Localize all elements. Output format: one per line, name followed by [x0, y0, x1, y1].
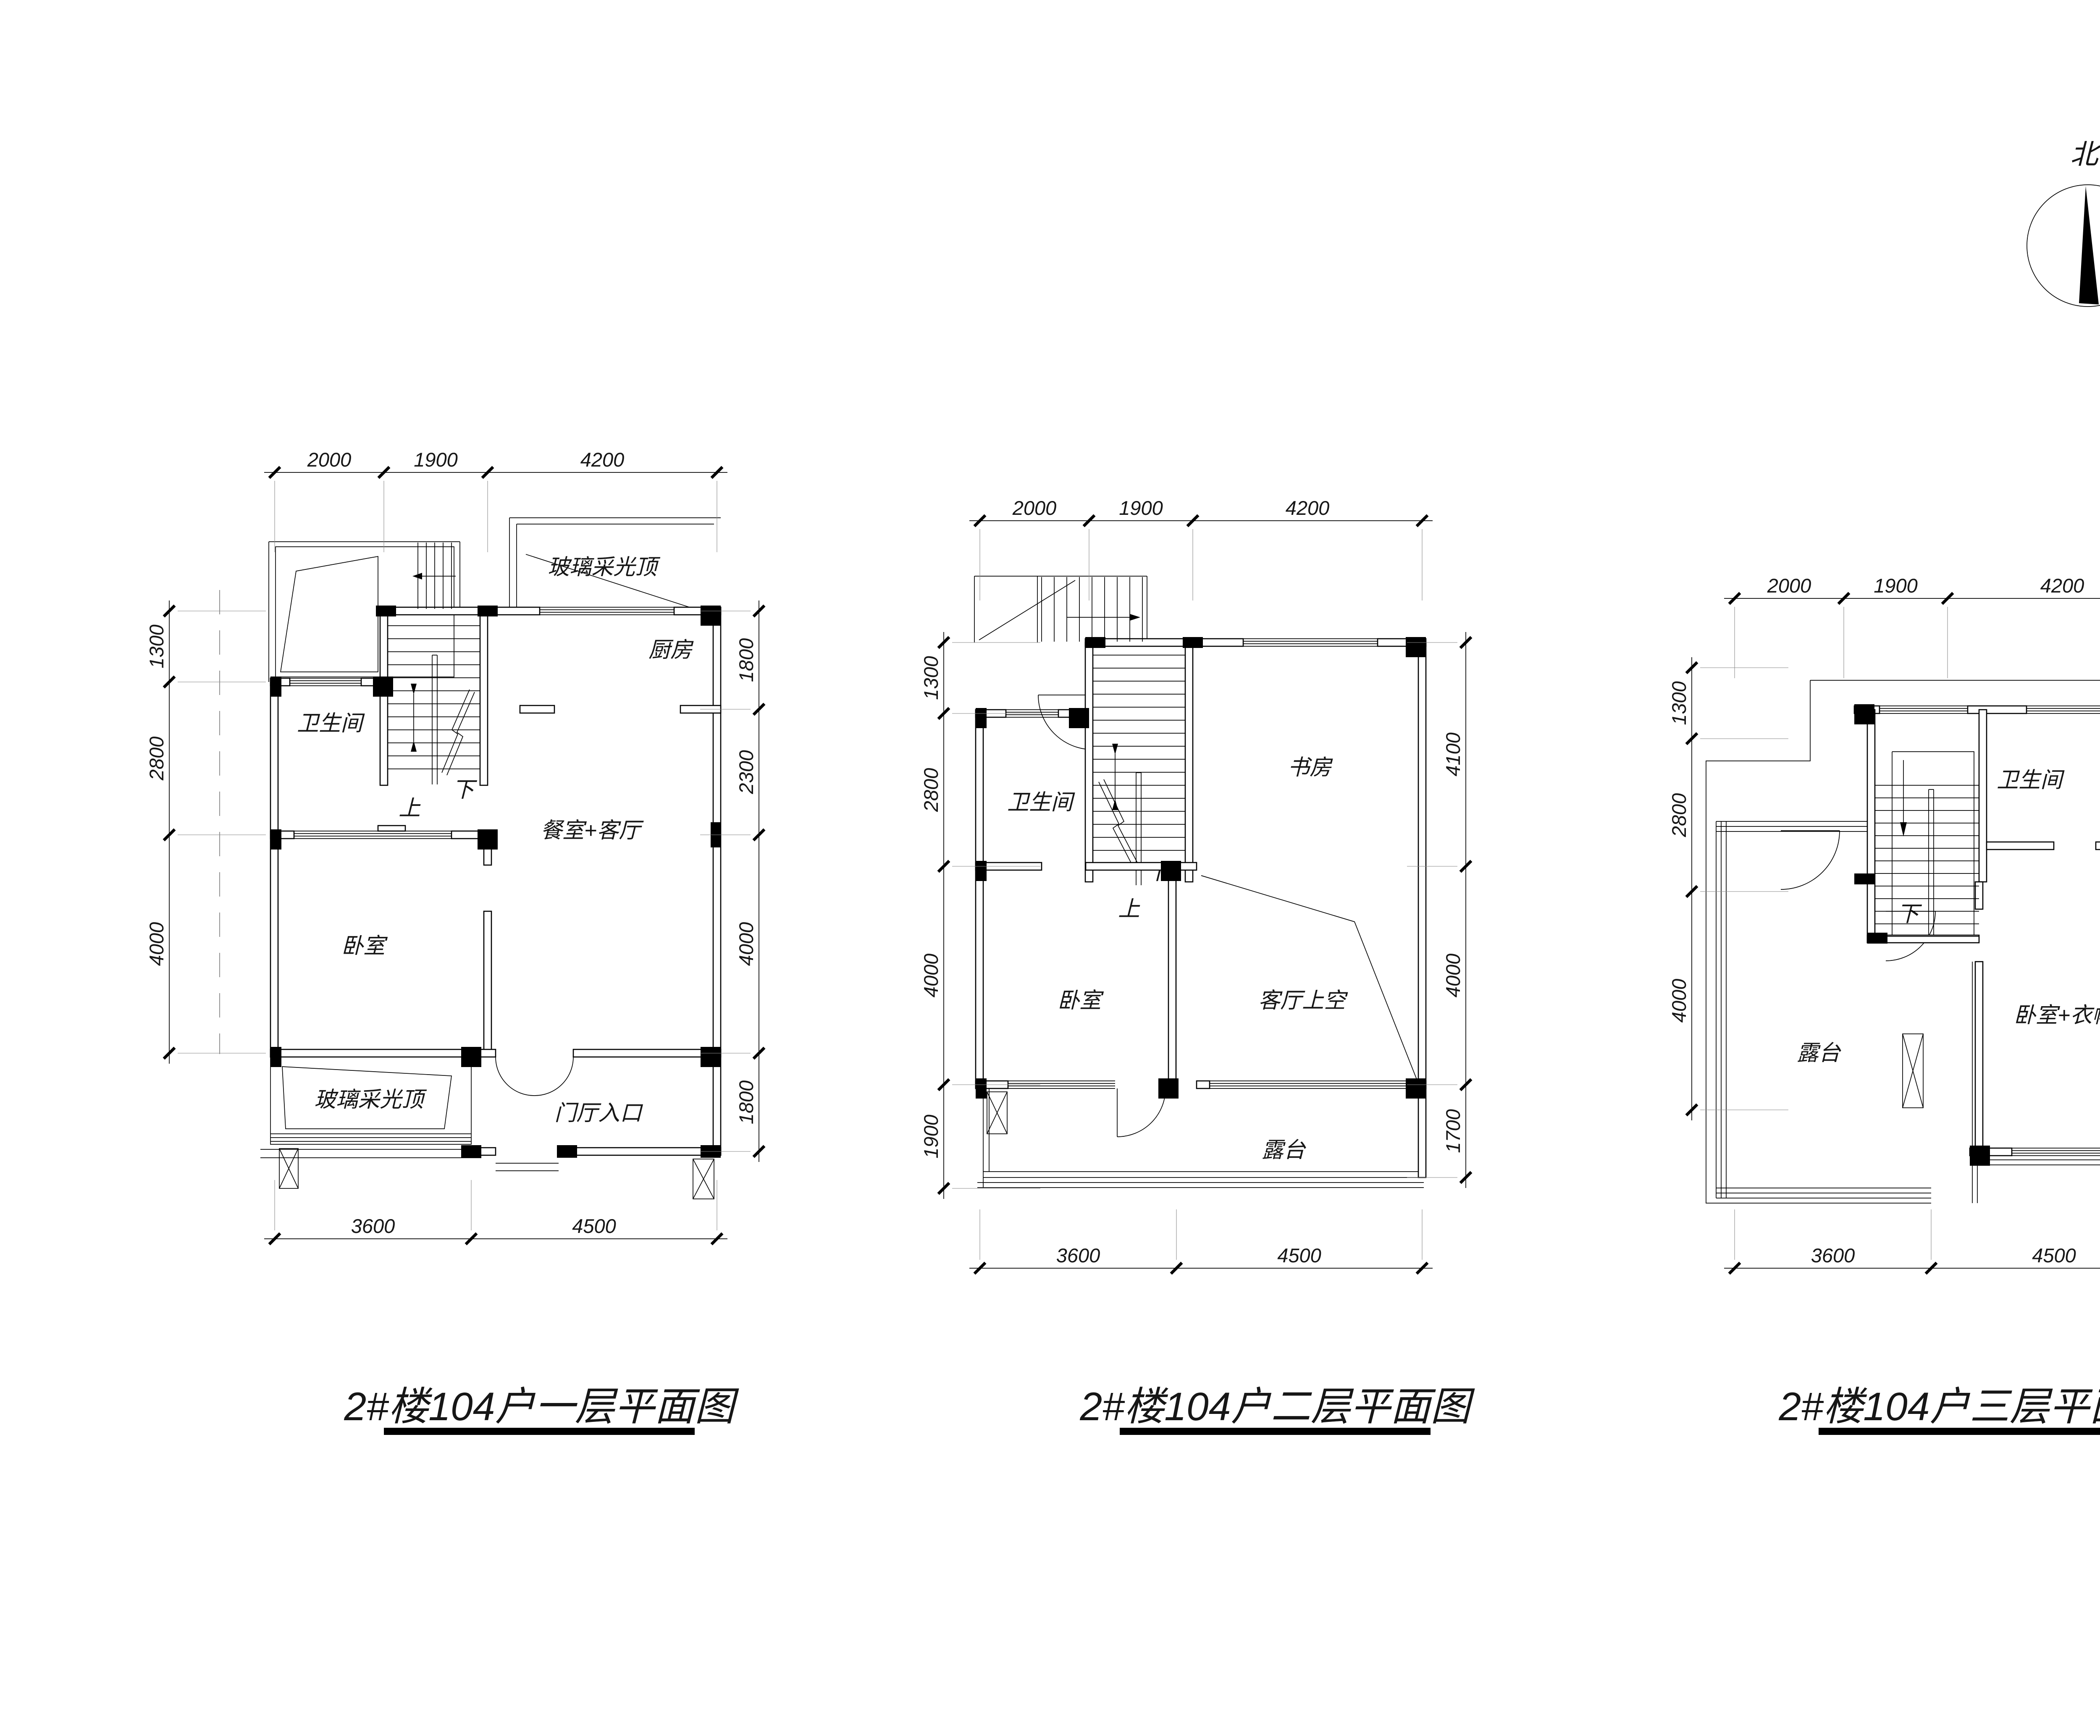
- dimension-value: 4000: [145, 922, 168, 966]
- wall: [1085, 639, 1243, 646]
- window: [2012, 1148, 2100, 1156]
- north-needle-icon: [2079, 186, 2099, 304]
- north-label: 北: [2070, 139, 2100, 170]
- room-label-bathroom: 卫生间: [1007, 790, 1075, 815]
- wall: [1975, 962, 1983, 1152]
- column: [1970, 1146, 1990, 1166]
- stair-treads: [1875, 785, 1979, 936]
- dimension-value: 1800: [735, 1080, 757, 1125]
- column: [1406, 1078, 1426, 1099]
- dimension-value: 2800: [1668, 793, 1690, 838]
- dimension-value: 1900: [1119, 497, 1163, 519]
- column: [1867, 933, 1887, 944]
- wall: [480, 607, 488, 785]
- column: [1854, 704, 1874, 724]
- dimension-value: 4500: [572, 1215, 616, 1237]
- stair-arrowhead-icon: [1112, 744, 1118, 755]
- dimension-value: 2000: [307, 448, 352, 471]
- room-label-terrace: 露台: [1797, 1041, 1841, 1065]
- room-label-dining-living: 餐室+客厅: [541, 818, 644, 843]
- plan3-terrace-door-arc: [1781, 831, 1840, 889]
- stair-arrowhead-icon: [411, 741, 417, 752]
- column: [1183, 637, 1203, 648]
- stair-arrowhead-icon: [412, 573, 422, 580]
- stair-treads: [418, 543, 451, 609]
- plan1-title: 2#楼104户一层平面图: [344, 1385, 739, 1429]
- wall: [1987, 842, 2054, 850]
- column: [270, 829, 281, 850]
- wall: [484, 911, 491, 1053]
- window: [2026, 706, 2100, 713]
- dimension-value: 4000: [1442, 954, 1464, 998]
- dimension-value: 1800: [735, 638, 757, 682]
- dimension-value: 4000: [735, 922, 757, 966]
- stair-label-down: 下: [452, 778, 478, 802]
- dimension-value: 3600: [1811, 1244, 1855, 1267]
- dimension-value: 4200: [1286, 497, 1330, 519]
- column: [270, 677, 281, 697]
- window: [294, 831, 451, 839]
- column: [376, 606, 396, 616]
- dimension-value: 4500: [1277, 1244, 1321, 1267]
- plan2-stair-breakline: [1099, 779, 1139, 868]
- column: [270, 1047, 281, 1067]
- window: [290, 678, 361, 686]
- dimension-value: 2300: [735, 750, 757, 795]
- wall: [270, 1049, 471, 1057]
- room-label-bedroom: 卧室: [341, 934, 388, 958]
- stair-treads: [1093, 655, 1185, 850]
- wall: [713, 607, 721, 1155]
- wall: [1185, 642, 1193, 882]
- plan-titles: 2#楼104户一层平面图 2#楼104户二层平面图 2#楼104户三层平面图: [344, 1385, 2100, 1435]
- plan3-stair-rail: [1929, 789, 1934, 943]
- window: [540, 607, 674, 615]
- column: [976, 861, 987, 881]
- dimension-value: 1300: [1668, 681, 1690, 725]
- wall: [2096, 842, 2100, 850]
- room-label-bathroom: 卫生间: [297, 711, 365, 736]
- column: [1069, 708, 1089, 728]
- room-label-living-void: 客厅上空: [1258, 989, 1348, 1013]
- column: [1406, 637, 1426, 657]
- room-label-terrace: 露台: [1262, 1138, 1306, 1162]
- column: [478, 829, 498, 850]
- flue-column-cross: [693, 1159, 714, 1199]
- dimension-value: 1900: [920, 1115, 942, 1159]
- plan2-terrace-door-arc: [1117, 1088, 1165, 1137]
- dimension-value: 2800: [145, 737, 168, 781]
- wall: [1867, 710, 1875, 943]
- column: [701, 1047, 721, 1067]
- wall: [1968, 706, 2026, 713]
- plan1-skylight-top-shape: [281, 556, 378, 672]
- north-arrow: 北: [2027, 139, 2100, 307]
- floor-plan-1: 卫生间 厨房 玻璃采光顶 餐室+客厅 卧室 玻璃采光顶 门厅入口 上 下 200…: [145, 448, 764, 1244]
- room-label-study: 书房: [1288, 755, 1333, 780]
- column: [373, 677, 393, 697]
- wall: [1979, 710, 1987, 882]
- stair-label-up: 上: [399, 796, 421, 821]
- dimension-value: 1900: [1874, 574, 1918, 597]
- room-label-bedroom: 卧室: [1058, 989, 1104, 1013]
- dimension-value: 1300: [920, 656, 942, 700]
- room-label-bathroom: 卫生间: [1997, 768, 2065, 792]
- plan1-title-underline: [384, 1428, 695, 1435]
- floorplan-drawing: 北 卫生间 厨房 玻璃采光顶 餐室+客厅 卧室 玻璃采光顶 门厅入口 上 下 2…: [0, 0, 2100, 1736]
- floor-plan-3: 卫生间 卧室+衣帽间 露台 下 200019004200130028004000…: [1668, 574, 2100, 1274]
- dimension-value: 4200: [580, 448, 625, 471]
- stair-arrowhead-icon: [1112, 799, 1118, 810]
- plan2-void-diagonal: [1201, 876, 1418, 1083]
- column: [1854, 873, 1874, 884]
- dimension-value: 4500: [2032, 1244, 2076, 1267]
- wall: [1197, 1081, 1210, 1088]
- floor-plan-2: 卫生间 书房 卧室 客厅上空 露台 上 下 200019004200130028…: [920, 497, 1471, 1274]
- plan3-title: 2#楼104户三层平面图: [1778, 1385, 2100, 1429]
- dimension-value: 2000: [1012, 497, 1057, 519]
- dimension-value: 4000: [1668, 979, 1690, 1023]
- plan1-stair-rail: [432, 655, 437, 784]
- dimension-value: 4200: [2040, 574, 2084, 597]
- wall: [380, 611, 388, 785]
- wall: [1168, 870, 1176, 1088]
- column: [1161, 861, 1181, 881]
- dimension-value: 3600: [351, 1215, 395, 1237]
- column: [701, 606, 721, 626]
- plan2-outline: [974, 576, 1424, 1188]
- column: [461, 1145, 481, 1158]
- room-label-skylight-bottom: 玻璃采光顶: [314, 1088, 427, 1112]
- wall: [270, 678, 278, 1057]
- column: [1158, 1078, 1179, 1099]
- column: [1085, 637, 1105, 648]
- wall: [378, 826, 405, 831]
- room-label-skylight-top: 玻璃采光顶: [548, 555, 661, 580]
- room-label-entry: 门厅入口: [554, 1101, 643, 1125]
- plan2-title-underline: [1120, 1428, 1431, 1435]
- stair-label-up: 上: [1118, 897, 1140, 921]
- dimension-value: 2000: [1767, 574, 1811, 597]
- wall: [380, 607, 540, 615]
- room-label-bedroom-cloak: 卧室+衣帽间: [2014, 1003, 2100, 1028]
- wall: [573, 1049, 721, 1057]
- column: [478, 606, 498, 616]
- dimension-value: 1900: [414, 448, 458, 471]
- dimension-value: 1300: [145, 624, 168, 669]
- window: [1879, 706, 1968, 713]
- column: [976, 1078, 987, 1099]
- stair-treads: [1042, 577, 1142, 642]
- dimension-value: 1700: [1442, 1109, 1464, 1153]
- wall: [1085, 642, 1093, 882]
- dimension-value: 4000: [920, 954, 942, 998]
- column: [976, 708, 987, 728]
- window: [1210, 1081, 1420, 1088]
- dimension-value: 3600: [1056, 1244, 1100, 1267]
- window: [1243, 639, 1378, 646]
- room-label-kitchen: 厨房: [648, 638, 694, 662]
- plan3-title-underline: [1819, 1428, 2100, 1435]
- flue-column-cross: [279, 1149, 298, 1188]
- flue-column-cross: [987, 1092, 1007, 1134]
- wall: [559, 1148, 721, 1155]
- wall: [520, 705, 554, 713]
- column: [461, 1047, 481, 1067]
- plan1-stair-breakline: [442, 690, 475, 775]
- flue-column-cross: [1903, 1034, 1923, 1108]
- plan1-entry-door-arcs: [496, 1057, 573, 1096]
- plan2-title: 2#楼104户二层平面图: [1079, 1385, 1475, 1429]
- wall: [976, 710, 983, 1088]
- dimension-value: 2800: [920, 768, 942, 813]
- stair-arrowhead-icon: [1130, 614, 1140, 621]
- stair-arrowhead-icon: [1900, 822, 1907, 837]
- dimension-value: 4100: [1442, 732, 1464, 776]
- stair-label-down: 下: [1897, 902, 1922, 926]
- stair-arrowhead-icon: [411, 684, 417, 695]
- window: [270, 1134, 471, 1141]
- column: [557, 1145, 577, 1158]
